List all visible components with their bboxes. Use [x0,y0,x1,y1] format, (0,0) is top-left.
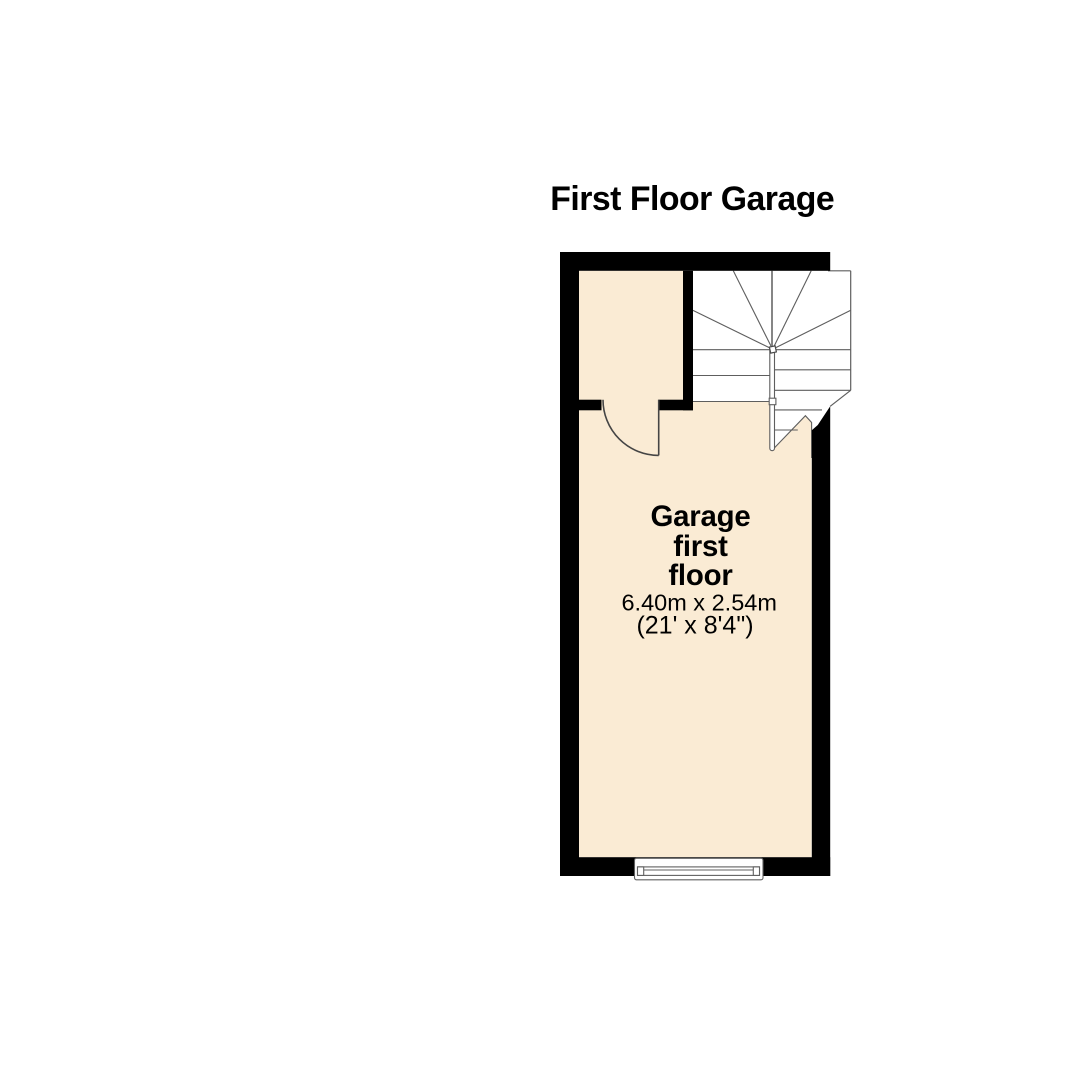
svg-text:floor: floor [668,559,732,592]
svg-text:First Floor Garage: First Floor Garage [550,180,834,218]
svg-text:(21' x 8'4"): (21' x 8'4") [636,611,753,639]
svg-text:Garage: Garage [650,500,750,533]
